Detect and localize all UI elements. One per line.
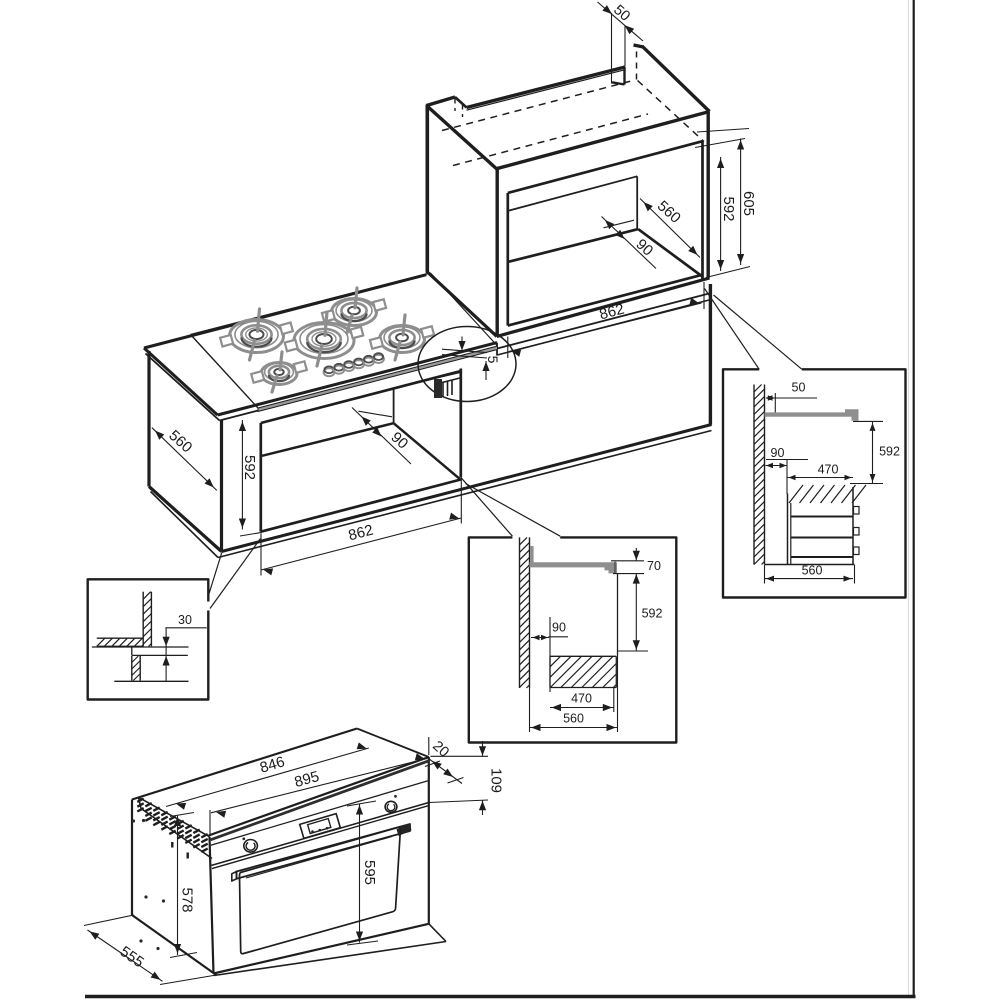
svg-text:560: 560: [563, 711, 584, 725]
svg-text:605: 605: [740, 191, 757, 216]
svg-text:5: 5: [485, 356, 501, 364]
svg-text:592: 592: [241, 455, 258, 480]
svg-text:470: 470: [818, 462, 839, 476]
svg-text:70: 70: [647, 559, 661, 573]
svg-text:592: 592: [879, 444, 900, 458]
svg-text:90: 90: [771, 446, 785, 460]
svg-text:595: 595: [361, 860, 378, 885]
svg-text:560: 560: [802, 563, 823, 577]
svg-text:50: 50: [792, 380, 806, 394]
svg-text:109: 109: [488, 768, 505, 793]
svg-text:30: 30: [178, 613, 192, 627]
svg-text:592: 592: [720, 196, 737, 221]
svg-text:578: 578: [179, 887, 196, 912]
svg-text:592: 592: [642, 606, 663, 620]
svg-text:90: 90: [552, 620, 566, 634]
svg-text:470: 470: [571, 691, 592, 705]
